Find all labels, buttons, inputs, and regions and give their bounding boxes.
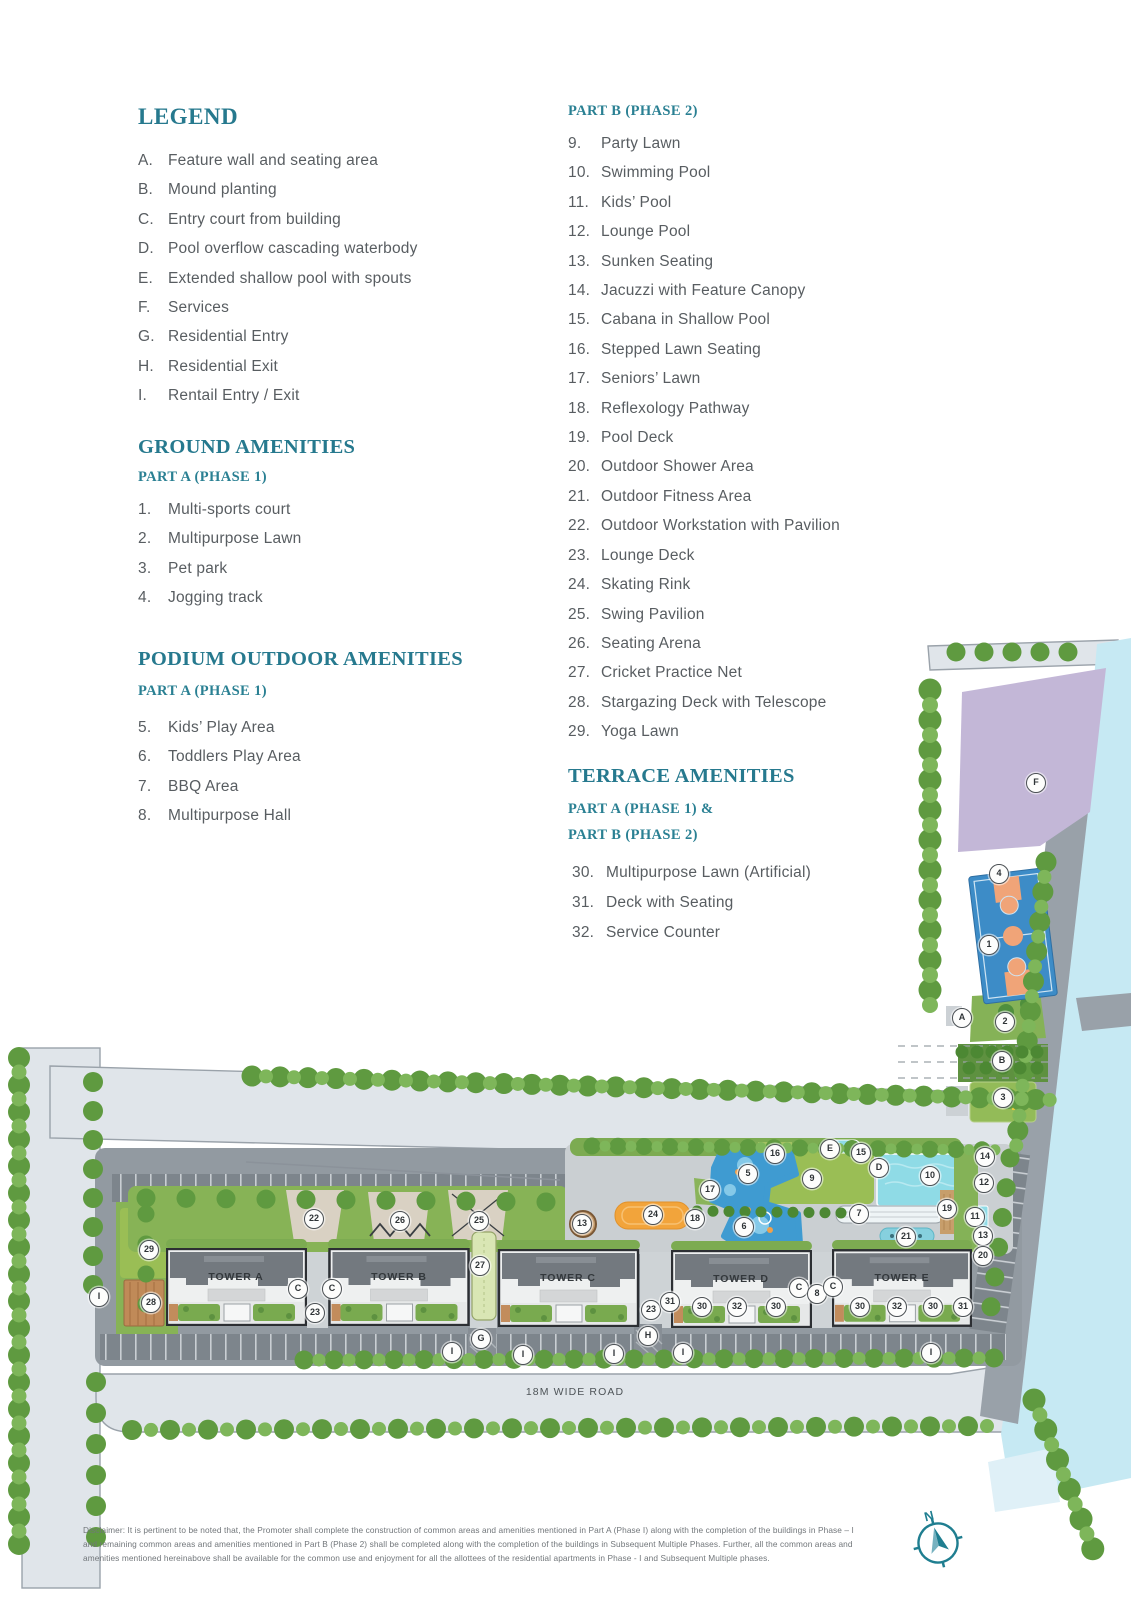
legend-title: LEGEND <box>138 104 238 130</box>
map-marker: C <box>322 1279 342 1299</box>
disclaimer-text: Disclaimer: It is pertinent to be noted … <box>83 1524 859 1566</box>
map-marker: 19 <box>937 1199 957 1219</box>
podium-amenities-list: 5.Kids’ Play Area6.Toddlers Play Area7.B… <box>138 713 301 831</box>
map-marker: 6 <box>734 1217 754 1237</box>
map-marker: 21 <box>896 1227 916 1247</box>
map-marker: 23 <box>641 1300 661 1320</box>
amenity-item: 16.Stepped Lawn Seating <box>568 335 840 364</box>
legend-item: E.Extended shallow pool with spouts <box>138 264 418 293</box>
amenity-item: 1.Multi-sports court <box>138 495 302 524</box>
amenity-item: 21.Outdoor Fitness Area <box>568 482 840 511</box>
amenity-item: 25.Swing Pavilion <box>568 600 840 629</box>
road-label: 18M WIDE ROAD <box>526 1386 624 1398</box>
terrace-amenities-list: 30.Multipurpose Lawn (Artificial)31.Deck… <box>572 858 811 948</box>
map-marker: 24 <box>643 1205 663 1225</box>
terrace-amenities-subtitle-2: PART B (PHASE 2) <box>568 827 698 844</box>
legend-item: F.Services <box>138 293 418 322</box>
map-marker: D <box>869 1158 889 1178</box>
map-marker: H <box>638 1326 658 1346</box>
map-marker: 14 <box>975 1147 995 1167</box>
part-b-list: 9.Party Lawn10.Swimming Pool11.Kids’ Poo… <box>568 129 840 747</box>
map-marker: 3 <box>993 1088 1013 1108</box>
amenity-item: 12.Lounge Pool <box>568 217 840 246</box>
map-marker: 22 <box>304 1209 324 1229</box>
terrace-amenities-title: TERRACE AMENITIES <box>568 765 795 788</box>
amenity-item: 26.Seating Arena <box>568 629 840 658</box>
legend-item: B.Mound planting <box>138 175 418 204</box>
map-marker: 30 <box>850 1297 870 1317</box>
map-marker: I <box>89 1287 109 1307</box>
map-marker: 9 <box>802 1169 822 1189</box>
legend-item: C.Entry court from building <box>138 205 418 234</box>
map-marker: 20 <box>973 1246 993 1266</box>
legend-item: D.Pool overflow cascading waterbody <box>138 234 418 263</box>
map-marker: 25 <box>469 1211 489 1231</box>
map-marker: 31 <box>660 1292 680 1312</box>
map-marker: 16 <box>765 1144 785 1164</box>
amenity-item: 5.Kids’ Play Area <box>138 713 301 742</box>
tower-label: TOWER B <box>371 1271 427 1283</box>
amenity-item: 28.Stargazing Deck with Telescope <box>568 688 840 717</box>
amenity-item: 11.Kids’ Pool <box>568 188 840 217</box>
amenity-item: 29.Yoga Lawn <box>568 717 840 746</box>
map-marker: 31 <box>953 1297 973 1317</box>
map-marker: G <box>471 1329 491 1349</box>
legend-list: A.Feature wall and seating areaB.Mound p… <box>138 146 418 411</box>
podium-amenities-title: PODIUM OUTDOOR AMENITIES <box>138 648 463 671</box>
amenity-item: 4.Jogging track <box>138 583 302 612</box>
map-marker: C <box>823 1277 843 1297</box>
amenity-item: 17.Seniors’ Lawn <box>568 364 840 393</box>
map-marker: I <box>673 1343 693 1363</box>
amenity-item: 18.Reflexology Pathway <box>568 394 840 423</box>
map-marker: 13 <box>572 1214 592 1234</box>
map-marker: 4 <box>989 864 1009 884</box>
map-marker: C <box>789 1278 809 1298</box>
map-marker: E <box>820 1139 840 1159</box>
map-marker: I <box>442 1342 462 1362</box>
map-marker: I <box>921 1343 941 1363</box>
map-marker: 13 <box>973 1226 993 1246</box>
map-marker: 28 <box>141 1293 161 1313</box>
map-marker: I <box>513 1345 533 1365</box>
ground-amenities-title: GROUND AMENITIES <box>138 436 355 459</box>
map-marker: 1 <box>979 935 999 955</box>
podium-amenities-subtitle: PART A (PHASE 1) <box>138 683 267 700</box>
legend-item: I.Rentail Entry / Exit <box>138 381 418 410</box>
ground-amenities-list: 1.Multi-sports court2.Multipurpose Lawn3… <box>138 495 302 613</box>
map-marker: 26 <box>390 1211 410 1231</box>
part-b-title: PART B (PHASE 2) <box>568 103 698 120</box>
amenity-item: 30.Multipurpose Lawn (Artificial) <box>572 858 811 888</box>
ground-amenities-subtitle: PART A (PHASE 1) <box>138 469 267 486</box>
map-marker: C <box>288 1279 308 1299</box>
legend-item: G.Residential Entry <box>138 322 418 351</box>
map-marker: B <box>992 1051 1012 1071</box>
map-marker: I <box>604 1344 624 1364</box>
amenity-item: 27.Cricket Practice Net <box>568 658 840 687</box>
map-marker: 30 <box>766 1297 786 1317</box>
map-marker: 10 <box>920 1166 940 1186</box>
amenity-item: 24.Skating Rink <box>568 570 840 599</box>
map-marker: 5 <box>738 1164 758 1184</box>
amenity-item: 13.Sunken Seating <box>568 247 840 276</box>
amenity-item: 10.Swimming Pool <box>568 158 840 187</box>
amenity-item: 14.Jacuzzi with Feature Canopy <box>568 276 840 305</box>
map-marker: 17 <box>700 1180 720 1200</box>
map-marker: 30 <box>923 1297 943 1317</box>
map-marker: 32 <box>887 1297 907 1317</box>
amenity-item: 20.Outdoor Shower Area <box>568 452 840 481</box>
amenity-item: 15.Cabana in Shallow Pool <box>568 305 840 334</box>
amenity-item: 22.Outdoor Workstation with Pavilion <box>568 511 840 540</box>
amenity-item: 23.Lounge Deck <box>568 541 840 570</box>
map-marker: A <box>952 1008 972 1028</box>
legend-item: H.Residential Exit <box>138 352 418 381</box>
amenity-item: 8.Multipurpose Hall <box>138 801 301 830</box>
amenity-item: 19.Pool Deck <box>568 423 840 452</box>
amenity-item: 2.Multipurpose Lawn <box>138 524 302 553</box>
amenity-item: 9.Party Lawn <box>568 129 840 158</box>
site-plan-page: LEGEND A.Feature wall and seating areaB.… <box>0 0 1131 1600</box>
amenity-item: 32.Service Counter <box>572 918 811 948</box>
tower-label: TOWER C <box>540 1272 596 1284</box>
tower-label: TOWER A <box>208 1271 263 1283</box>
tower-label: TOWER D <box>713 1273 769 1285</box>
map-marker: 12 <box>974 1173 994 1193</box>
amenity-item: 3.Pet park <box>138 554 302 583</box>
legend-item: A.Feature wall and seating area <box>138 146 418 175</box>
map-marker: 29 <box>139 1240 159 1260</box>
map-marker: 32 <box>727 1297 747 1317</box>
map-marker: 11 <box>965 1207 985 1227</box>
amenity-item: 31.Deck with Seating <box>572 888 811 918</box>
map-marker: 27 <box>470 1256 490 1276</box>
amenity-item: 6.Toddlers Play Area <box>138 742 301 771</box>
terrace-amenities-subtitle-1: PART A (PHASE 1) & <box>568 801 714 818</box>
tower-label: TOWER E <box>874 1272 929 1284</box>
amenity-item: 7.BBQ Area <box>138 772 301 801</box>
map-marker: 7 <box>849 1204 869 1224</box>
map-marker: 18 <box>685 1209 705 1229</box>
map-marker: 2 <box>995 1012 1015 1032</box>
map-marker: 15 <box>851 1143 871 1163</box>
map-marker: 23 <box>305 1303 325 1323</box>
map-marker: 30 <box>692 1297 712 1317</box>
map-marker: F <box>1026 773 1046 793</box>
